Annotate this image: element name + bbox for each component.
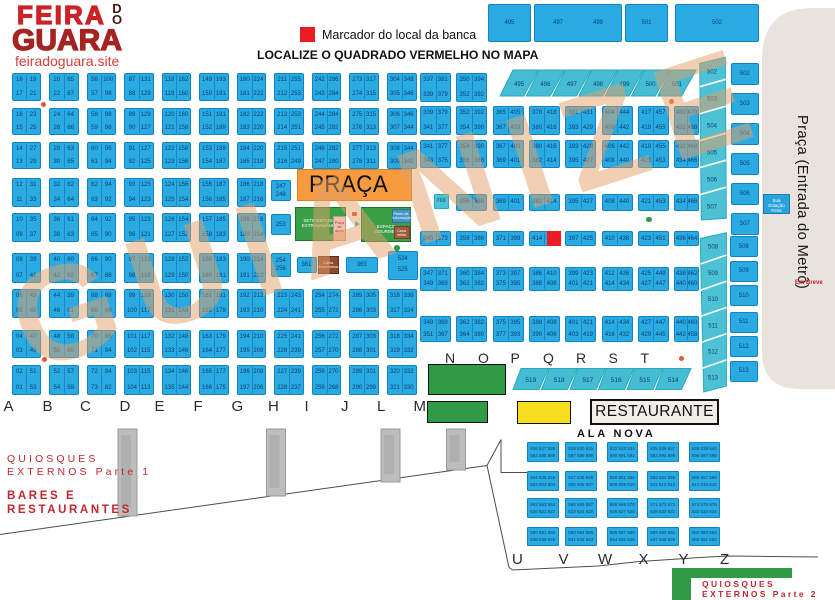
svg-text:498: 498 xyxy=(593,82,604,88)
svg-text:496: 496 xyxy=(540,82,551,88)
svg-text:512: 512 xyxy=(708,350,719,356)
svg-text:515: 515 xyxy=(639,377,650,384)
svg-text:507: 507 xyxy=(707,205,718,211)
svg-text:516: 516 xyxy=(611,377,622,384)
svg-text:500: 500 xyxy=(646,82,657,88)
svg-text:519: 519 xyxy=(525,377,536,384)
svg-text:501: 501 xyxy=(672,82,683,88)
svg-text:499: 499 xyxy=(619,82,630,88)
svg-text:509: 509 xyxy=(708,271,719,277)
svg-text:510: 510 xyxy=(708,297,719,303)
svg-text:497: 497 xyxy=(567,82,578,88)
svg-text:513: 513 xyxy=(708,376,719,382)
svg-text:506: 506 xyxy=(707,178,718,184)
svg-text:511: 511 xyxy=(708,323,718,329)
svg-text:518: 518 xyxy=(554,377,565,384)
svg-text:495: 495 xyxy=(514,82,525,88)
svg-text:508: 508 xyxy=(708,245,719,251)
svg-text:502: 502 xyxy=(707,70,718,76)
svg-text:503: 503 xyxy=(707,97,718,103)
svg-text:504: 504 xyxy=(707,124,718,130)
svg-text:Praça (Entrada do Metrô): Praça (Entrada do Metrô) xyxy=(794,115,810,289)
svg-text:514: 514 xyxy=(668,377,679,384)
svg-text:517: 517 xyxy=(582,377,593,384)
svg-text:505: 505 xyxy=(707,151,718,157)
